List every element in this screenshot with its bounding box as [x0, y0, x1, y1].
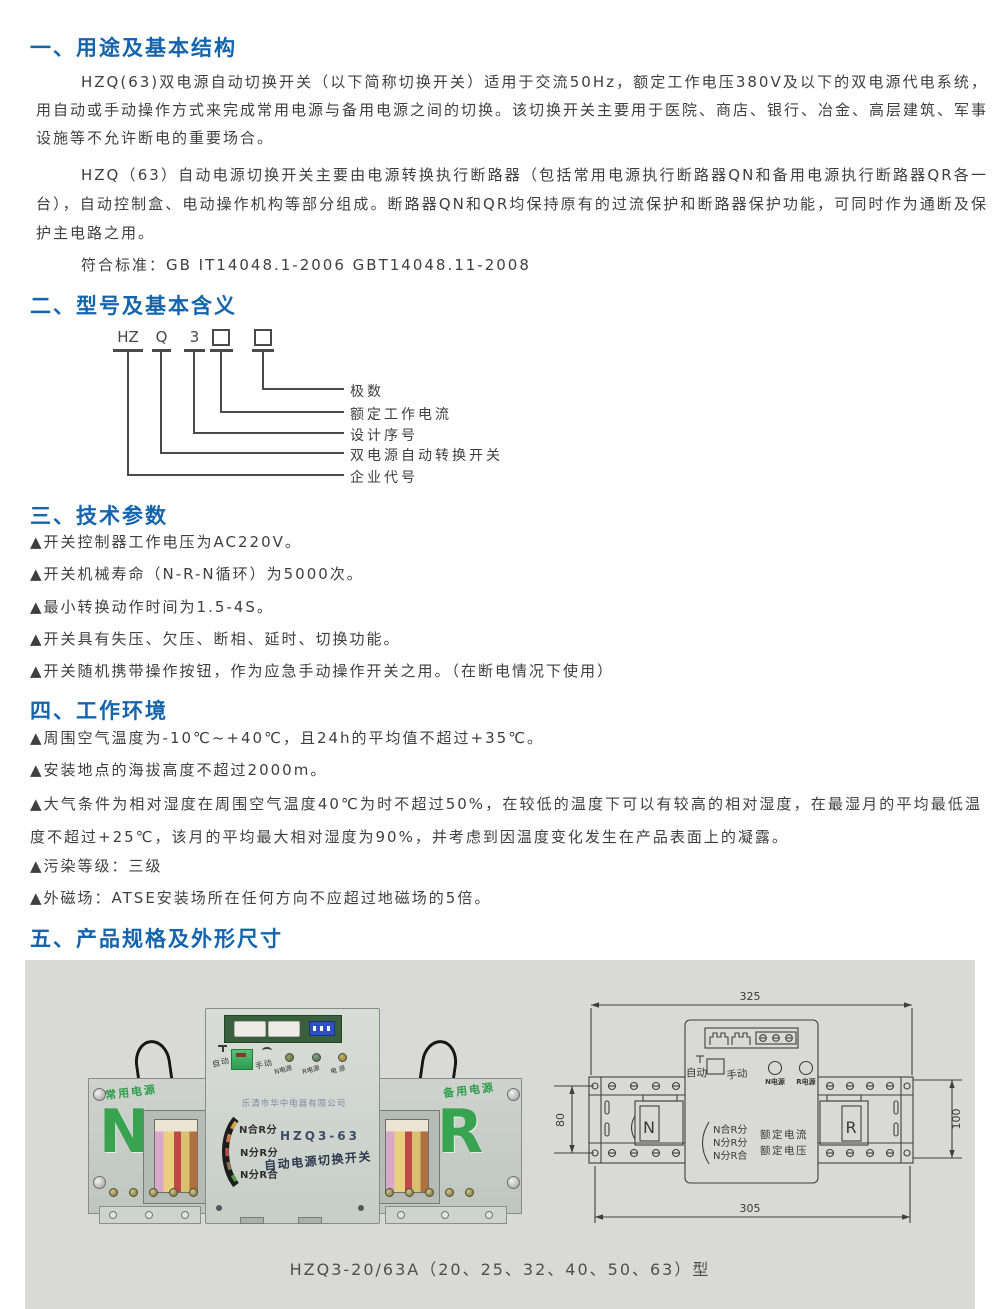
model-code-type: Q: [152, 328, 171, 346]
terminal-screw: [445, 1188, 454, 1197]
section1-standards: 符合标准：GB IT14048.1-2006 GBT14048.11-2008: [36, 251, 988, 280]
env-item: ▲安装地点的海拔高度不超过2000m。: [30, 754, 327, 786]
model-code-company: HZ: [113, 328, 143, 346]
led-n-icon: [285, 1053, 294, 1062]
env-item: ▲周围空气温度为-10℃~+40℃，且24h的平均值不超过+35℃。: [30, 722, 544, 754]
mount-hole: [181, 1211, 189, 1219]
tech-param-item: ▲开关具有失压、欠压、断相、延时、切换功能。: [30, 623, 401, 655]
spec-panel: 常用电源 N 备用电源 R: [25, 960, 975, 1309]
screw-icon: [93, 1088, 106, 1101]
mount-hole: [485, 1211, 493, 1219]
terminal-screw: [425, 1188, 434, 1197]
breaker-label-window: [385, 1119, 429, 1193]
company-name: 乐清市华中电器有限公司: [226, 1097, 362, 1109]
letter-n: N: [99, 1102, 149, 1162]
model-label-type: 双电源自动转换开关: [350, 445, 503, 465]
drawing-auto-label: 自动: [686, 1066, 707, 1079]
tech-param-item: ▲最小转换动作时间为1.5-4S。: [30, 591, 274, 623]
screw-icon: [507, 1176, 520, 1189]
connector: [268, 1021, 300, 1037]
terminal-screw: [385, 1188, 394, 1197]
screw-icon: [507, 1088, 520, 1101]
dim-left-label: 80: [554, 1113, 567, 1127]
led-power-icon: [338, 1053, 347, 1062]
section1-paragraph-1: HZQ(63)双电源自动切换开关（以下简称切换开关）适用于交流50Hz，额定工作…: [36, 68, 988, 152]
connector-line: [220, 411, 344, 413]
led-r-label: R电源: [301, 1062, 320, 1076]
section5-title: 五、产品规格及外形尺寸: [30, 923, 283, 953]
bottom-tab: [298, 1217, 322, 1224]
dim-right-label: 100: [950, 1109, 963, 1130]
mount-hole: [441, 1211, 449, 1219]
screw-icon: [216, 1205, 222, 1211]
terminal-screw: [129, 1188, 138, 1197]
button-slot: [236, 1053, 246, 1057]
dip-switch: [309, 1021, 335, 1036]
model-label-current: 额定工作电流: [350, 404, 452, 424]
product-photo: 常用电源 N 备用电源 R: [85, 1002, 525, 1232]
connector: [234, 1021, 266, 1037]
drawing-letter-n: N: [643, 1118, 655, 1137]
terminal-screw: [465, 1188, 474, 1197]
model-label-series: 设计序号: [350, 425, 418, 445]
terminal-screw: [149, 1188, 158, 1197]
connector-line: [193, 432, 344, 434]
led-power-label: 电 源: [329, 1062, 346, 1075]
drawing-led-n-label: N电源: [765, 1077, 785, 1086]
led-r-icon: [312, 1053, 321, 1062]
mount-hole: [109, 1211, 117, 1219]
datasheet-page: { "colors": { "heading_blue": "#1464ae",…: [0, 0, 1000, 1309]
dimension-drawing: 325 305 80 100 自动 手动 N电源 R电源 N合R分 N分R分 N…: [550, 985, 970, 1245]
drawing-pos2: N分R分: [713, 1137, 747, 1149]
connector-line: [127, 474, 344, 476]
tech-param-item: ▲开关控制器工作电压为AC220V。: [30, 526, 302, 558]
dim-top-label: 325: [740, 990, 761, 1003]
connector-line: [220, 352, 222, 413]
model-code-current-box: [212, 329, 230, 346]
auto-label: 自动: [211, 1055, 231, 1070]
manual-label: 手动: [254, 1057, 274, 1072]
section1-paragraph-2: HZQ（63）自动电源切换开关主要由电源转换执行断路器（包括常用电源执行断路器Q…: [36, 161, 988, 248]
terminal-screw: [109, 1188, 118, 1197]
mount-hole: [145, 1211, 153, 1219]
drawing-manual-label: 手动: [726, 1067, 748, 1082]
bottom-tab: [240, 1217, 264, 1224]
connector-line: [193, 352, 195, 434]
mode-button: [231, 1049, 253, 1070]
model-code-poles-box: [254, 329, 272, 346]
drawing-letter-r: R: [845, 1118, 856, 1137]
led-n-label: N电源: [273, 1062, 293, 1076]
drawing-led-r-label: R电源: [796, 1077, 815, 1086]
section2-title: 二、型号及基本含义: [30, 290, 237, 320]
terminal-screw: [169, 1188, 178, 1197]
control-box: 自动 手动 N电源 R电源 电 源 乐清市华中电器有限公司 N合R分 N分R分: [205, 1008, 380, 1224]
rated-current-label: 额定电流: [760, 1128, 808, 1141]
section4-title: 四、工作环境: [30, 695, 168, 725]
env-item: ▲大气条件为相对湿度在周围空气温度40℃为时不超过50%，在较低的温度下可以有较…: [30, 788, 982, 854]
position-label-1: N合R分: [239, 1121, 277, 1136]
connector-line: [160, 352, 162, 454]
terminal-screw: [189, 1188, 198, 1197]
model-label-company: 企业代号: [350, 467, 418, 487]
model-code-series: 3: [184, 328, 205, 346]
model-label-poles: 极数: [350, 381, 384, 401]
env-item: ▲污染等级：三级: [30, 850, 163, 882]
tech-param-item: ▲开关随机携带操作按钮，作为应急手动操作开关之用。（在断电情况下使用）: [30, 655, 614, 687]
letter-r: R: [437, 1102, 483, 1162]
drawing-pos3: N分R合: [713, 1149, 747, 1162]
manual-mark-icon: [262, 1047, 272, 1054]
connector-line: [160, 452, 344, 454]
connector-line: [262, 388, 344, 390]
section1-title: 一、用途及基本结构: [30, 32, 237, 62]
figure-caption: HZQ3-20/63A（20、25、32、40、50、63）型: [25, 1256, 975, 1280]
dim-bottom-label: 305: [740, 1202, 761, 1215]
connector-line: [127, 352, 129, 476]
breaker-label-window: [154, 1119, 198, 1193]
env-item: ▲外磁场：ATSE安装场所在任何方向不应超过地磁场的5倍。: [30, 882, 491, 914]
connector-line: [262, 352, 264, 390]
product-name: 自动电源切换开关: [263, 1147, 372, 1173]
drawing-pos1: N合R分: [713, 1123, 747, 1136]
tech-param-item: ▲开关机械寿命（N-R-N循环）为5000次。: [30, 558, 364, 590]
screw-icon: [93, 1176, 106, 1189]
pcb-strip: [224, 1015, 342, 1043]
mount-hole: [397, 1211, 405, 1219]
terminal-screw: [405, 1188, 414, 1197]
auto-mark-icon: [218, 1045, 227, 1053]
screw-icon: [358, 1205, 364, 1211]
rated-voltage-label: 额定电压: [760, 1144, 808, 1157]
product-model: HZQ3-63: [280, 1129, 360, 1143]
